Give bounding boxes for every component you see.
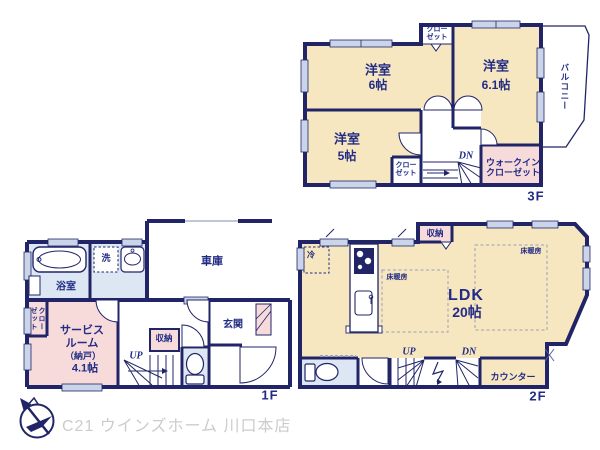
brand-footer-text: C21 ウインズホーム 川口本店 bbox=[62, 412, 291, 436]
balcony-outline bbox=[543, 26, 589, 147]
laundry-pan bbox=[94, 247, 118, 272]
bathtub-icon bbox=[33, 247, 86, 272]
floor-2f-plan bbox=[297, 221, 590, 387]
sink-icon bbox=[355, 291, 373, 315]
kitchen-counter bbox=[346, 244, 382, 333]
stove-icon bbox=[354, 248, 374, 274]
bath-counter bbox=[29, 276, 40, 295]
vent-marks bbox=[326, 229, 406, 237]
stairs-1f bbox=[124, 355, 173, 387]
washbasin-icon bbox=[121, 247, 144, 272]
floor-plan-drawing bbox=[0, 0, 600, 450]
compass-icon bbox=[20, 398, 54, 438]
floor-1f-plan bbox=[24, 221, 290, 391]
shoe-cabinet bbox=[256, 304, 271, 335]
floor-3f-plan bbox=[301, 21, 589, 188]
toilet-icon-1f bbox=[186, 354, 204, 385]
toilet-icon-2f bbox=[305, 364, 338, 382]
floor-plan-page: 洋室 6帖 洋室 6.1帖 洋室 5帖 クロー ゼット クロー ゼット ウォーク… bbox=[0, 0, 600, 450]
